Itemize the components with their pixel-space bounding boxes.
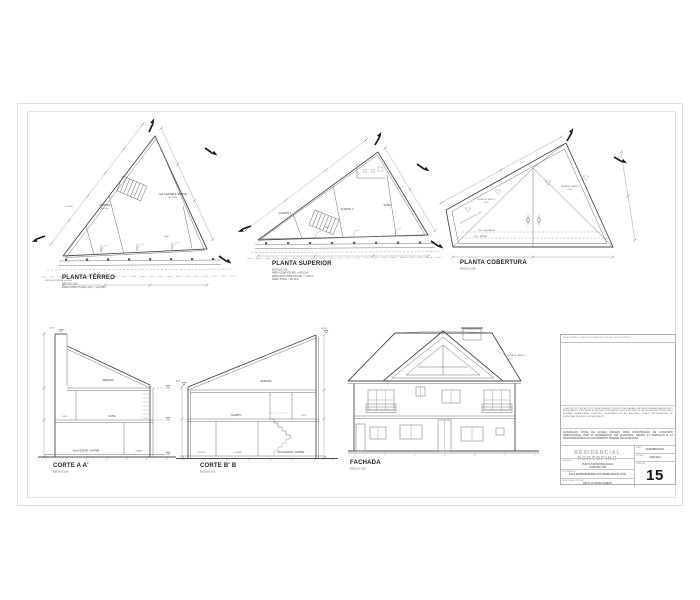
fachada-title: FACHADA [350, 460, 381, 466]
date-cell: DATA DEZEMBRO/2021 [635, 446, 675, 454]
superior-room-bwc: BWC [325, 227, 330, 229]
fachada-drawing: TELHA DE CIMENTO i=35% FACHADA ESCALA 1:… [346, 320, 542, 480]
corte-b-room-bwc: BWC [302, 415, 307, 417]
screenshot-root: { "planta_terreo": { "title": "PLANTA TÉ… [0, 0, 700, 600]
terreo-section-flags [31, 118, 232, 265]
corte-b-room-servico: SERVIÇO [260, 380, 271, 383]
corte-a-drawing: 10,70 SERVIÇO BWC SUÍTE SALA ESTAR / JAN… [36, 320, 180, 478]
superior-stairs [309, 210, 339, 235]
terreo-room-cozinha: COZINHA [99, 204, 111, 207]
corte-b-level-left: 8,45 [176, 381, 181, 383]
corte-b-title: CORTE B' B [200, 463, 237, 469]
superior-area3: ÁREA TOTAL = 99,32m² [272, 278, 299, 281]
corte-b-room-cozinha: COZINHA [233, 451, 242, 454]
cobertura-telha-right-2: i=35% [567, 189, 573, 191]
superior-walls [258, 152, 428, 240]
project-name-cell: RESIDENCIAL PORTOFINO [561, 446, 634, 459]
planta-superior-drawing: QUARTO 1 QUARTO 2 SUÍTE BWC PLANTA SUPER… [245, 138, 445, 298]
terreo-stairs [117, 176, 147, 201]
corte-b-room-aserv: A. SERV. [198, 451, 206, 454]
cobertura-proj-alvenaria: PROJ. ALVENARIA [478, 229, 495, 232]
fachada-upper-windows [366, 387, 512, 413]
address-cell: ENDEREÇO PUNTA CORSO BOLOGNA CURITIBA / … [561, 459, 634, 470]
terreo-room-aserv: A. SERV. [65, 205, 73, 208]
title-block-left-column: RESIDENCIAL PORTOFINO ENDEREÇO PUNTA COR… [561, 446, 635, 487]
address-line-2: CURITIBA / PR [561, 466, 634, 469]
cobertura-telha-right-1: TELHA DE CIMENTO [561, 185, 580, 188]
corte-b-room-sala: SALA ESTAR / JANTAR [278, 451, 305, 454]
date-label: DATA [636, 447, 641, 449]
corte-a-levels [43, 330, 172, 459]
cobertura-outline [446, 143, 613, 247]
cobertura-telha-edge: TELHA DE CIMENTO i=35% [459, 211, 482, 225]
corte-b-scale: ESCALA 1:50 [200, 471, 216, 474]
cobertura-slope-symbols [465, 176, 589, 226]
title-block-stamp-area [561, 343, 675, 406]
terreo-dimensions [50, 123, 215, 287]
terreo-area: ÁREA COMPUTÁVEL (P.B.) = 111,08m² [62, 286, 106, 289]
top-note-text: ESTE DESENHO É PARTE INTEGRANTE DO PROJE… [563, 337, 632, 339]
cobertura-telha-left-1: TELHA DE CIMENTO [477, 198, 496, 201]
corte-a-room-sala: SALA ESTAR / JANTAR [73, 450, 100, 453]
corte-a-title: CORTE A A' [53, 463, 89, 469]
corte-a-room-lavabo: LAVABO [135, 450, 143, 453]
corte-a-structure [38, 334, 176, 460]
fachada-note-1: TELHA DE CIMENTO [507, 354, 526, 357]
corte-a-scale: ESCALA 1:50 [53, 471, 69, 474]
corte-a-level-top: 10,70 [49, 328, 55, 330]
terreo-room-hall: HALL [165, 235, 170, 238]
fachada-note-2: i=35% [507, 359, 513, 361]
fachada-lower-openings [356, 420, 504, 451]
responsible-cell: RESPONSÁVEL TÉCNICO ARQT. ANTONIO GRECH [561, 479, 634, 487]
date-value: DEZEMBRO/2021 [635, 446, 675, 452]
fachada-scale: ESCALA 1:50 [350, 468, 366, 471]
title-block-top-note: ESTE DESENHO É PARTE INTEGRANTE DO PROJE… [561, 335, 675, 343]
superior-room-quarto1: QUARTO 1 [279, 212, 292, 215]
title-block-right-column: DATA DEZEMBRO/2021 ESCALA INDICADA PRANC… [635, 446, 675, 487]
superior-title: PLANTA SUPERIOR [272, 261, 332, 267]
cobertura-scale: ESCALA 1:50 [460, 268, 476, 271]
corte-b-level-top: 10,70 [321, 328, 327, 330]
superior-room-suite: SUÍTE [383, 204, 391, 207]
cobertura-telha-left-2: i=35% [483, 202, 489, 204]
cobertura-proj-beiral: PROJ. BEIRAL [474, 235, 487, 238]
planta-cobertura-drawing: TELHA DE CIMENTO i=35% TELHA DE CIMENTO … [438, 140, 640, 272]
title-block-grid: RESIDENCIAL PORTOFINO ENDEREÇO PUNTA COR… [561, 446, 675, 487]
corte-b-structure [176, 335, 338, 462]
title-block-disclaimer: O AUTOR DO PROJETO E O RESPONSÁVEL TÉCNI… [561, 406, 675, 429]
responsible-label: RESPONSÁVEL TÉCNICO [562, 480, 584, 482]
corte-a-room-servico: SERVIÇO [102, 379, 113, 382]
corte-b-levels [181, 331, 329, 460]
terreo-room-sala: SALA ESTAR E JANTAR [159, 193, 187, 196]
address-label: ENDEREÇO [562, 460, 572, 462]
sheet-number-label: PRANCHA [636, 463, 645, 465]
terreo-title: PLANTA TÉRREO [62, 273, 115, 281]
cobertura-title: PLANTA COBERTURA [460, 260, 527, 266]
title-block: ESTE DESENHO É PARTE INTEGRANTE DO PROJE… [560, 334, 676, 485]
corte-a-room-bwc: BWC [63, 416, 68, 418]
terreo-walls [63, 136, 207, 258]
sheet-number-cell: PRANCHA 15 [635, 462, 675, 487]
superior-room-quarto2: QUARTO 2 [341, 208, 354, 211]
fachada-roof [348, 328, 521, 384]
corte-b-drawing: 10,70 8,45 SERVIÇO QUARTO BWC A. SERV. C… [176, 318, 346, 480]
corte-a-room-suite: SUÍTE [108, 415, 116, 418]
title-block-description: ALTERAÇÃO TOTAL DE ALVARÁ 345/2021 PARA … [561, 429, 675, 446]
scale-label: ESCALA [636, 455, 643, 457]
owner-label: PROPRIETÁRIO [562, 471, 576, 473]
terreo-room-sala-area: A=27,80m² [168, 196, 178, 199]
sheet-number: 15 [635, 462, 675, 484]
terreo-room-cozinha-area: A=8,50m² [101, 207, 110, 210]
scale-cell: ESCALA INDICADA [635, 454, 675, 462]
owner-cell: PROPRIETÁRIO SCLA EMPREENDIMENTOS IMOBIL… [561, 470, 634, 479]
corte-b-room-quarto: QUARTO [231, 414, 242, 417]
planta-terreo-drawing: A. SERV. COZINHA A=8,50m² SALA ESTAR E J… [35, 118, 245, 305]
